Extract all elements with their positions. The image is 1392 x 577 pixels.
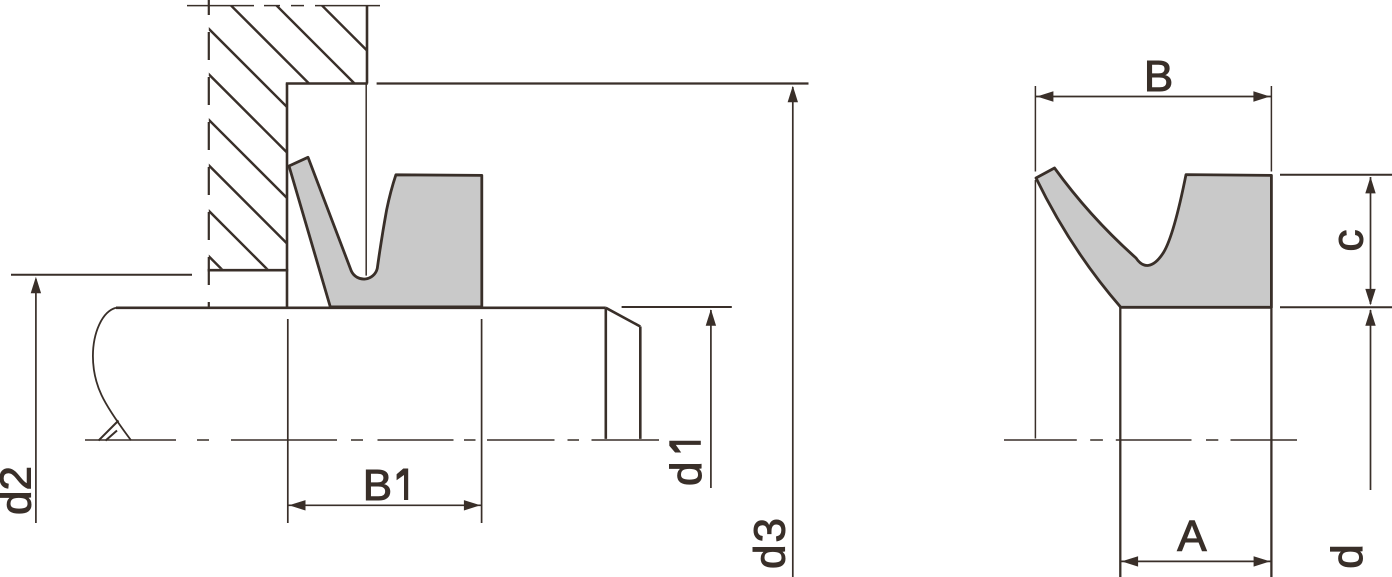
svg-text:B: B — [363, 461, 392, 510]
svg-text:c: c — [1323, 230, 1372, 252]
svg-text:A: A — [1177, 512, 1207, 561]
svg-text:d2: d2 — [0, 466, 41, 515]
svg-text:d3: d3 — [745, 516, 794, 569]
svg-text:B: B — [1144, 52, 1173, 101]
svg-text:d: d — [662, 462, 711, 486]
svg-text:d: d — [1323, 544, 1372, 568]
